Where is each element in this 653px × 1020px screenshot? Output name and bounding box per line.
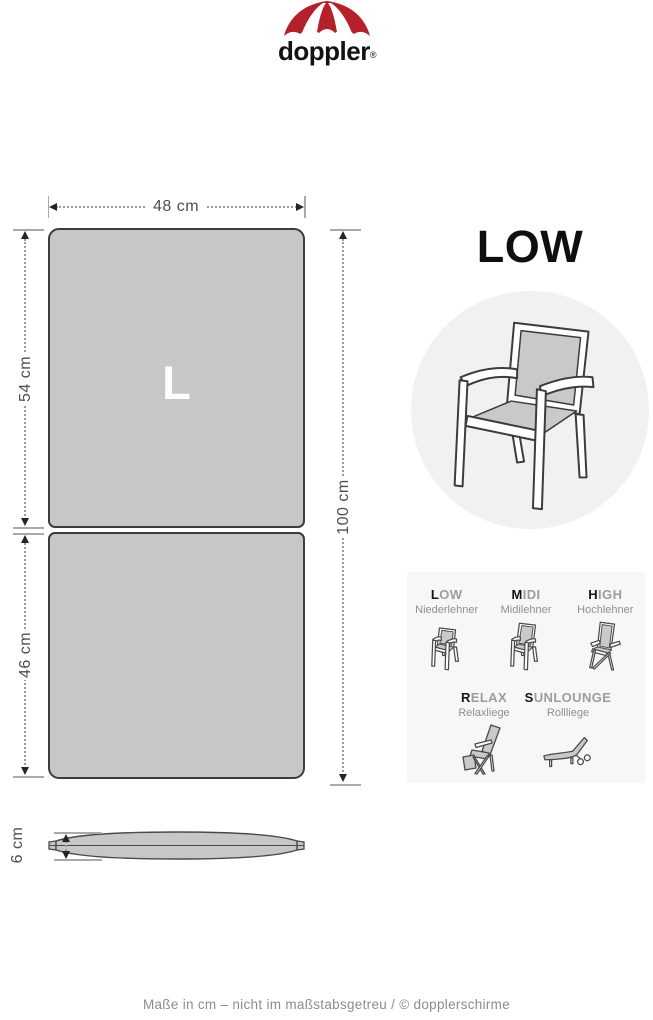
arrow-down-icon (21, 518, 29, 526)
arrow-up-icon (62, 834, 70, 842)
brand-wordmark: doppler® (276, 38, 378, 64)
brand-text: doppler (278, 36, 370, 66)
thickness-label: 6 cm (3, 825, 33, 866)
chair-type-panel: LOW Niederlehner (407, 572, 645, 783)
footer-note: Maße in cm – nicht im maßstabsgetreu / ©… (0, 997, 653, 1012)
size-letter: L (48, 359, 305, 406)
type-item-sunlounge: SUNLOUNGE Rollliege (529, 690, 607, 776)
type-sublabel: Niederlehner (415, 604, 478, 616)
arrow-up-icon (21, 535, 29, 543)
arrow-right-icon (296, 203, 304, 211)
type-sublabel: Hochlehner (577, 604, 633, 616)
cushion-seat-section (48, 532, 305, 779)
product-title: LOW (411, 224, 649, 269)
total-length-label: 100 cm (329, 477, 359, 536)
chair-midi-icon (507, 621, 545, 673)
seat-section-label: 46 cm (11, 630, 41, 680)
arrow-down-icon (62, 851, 70, 859)
product-dimension-sheet: doppler® L 48 cm 54 cm 46 cm 100 (0, 0, 653, 1020)
type-item-low: LOW Niederlehner (408, 587, 486, 673)
chair-low-illustration (411, 291, 649, 529)
type-item-relax: RELAX Relaxliege (445, 690, 523, 776)
type-sublabel: Rollliege (547, 707, 589, 719)
recliner-icon (461, 724, 507, 776)
type-row-2: RELAX Relaxliege SUNLOUNGE Rol (407, 690, 645, 776)
type-sublabel: Relaxliege (458, 707, 509, 719)
chair-high-icon (585, 621, 625, 673)
type-sublabel: Midilehner (501, 604, 552, 616)
type-item-high: HIGH Hochlehner (566, 587, 644, 673)
arrow-up-icon (339, 231, 347, 239)
back-section-label: 54 cm (11, 354, 41, 404)
width-label: 48 cm (146, 197, 206, 217)
registered-mark: ® (370, 50, 376, 60)
sunlounger-icon (541, 731, 595, 775)
cushion-side-view (48, 829, 305, 862)
chair-low-icon (428, 621, 466, 673)
chair-illustration-circle (411, 291, 649, 529)
arrow-up-icon (21, 231, 29, 239)
arrow-down-icon (339, 774, 347, 782)
arrow-left-icon (49, 203, 57, 211)
umbrella-icon (281, 0, 373, 37)
type-row-1: LOW Niederlehner (407, 587, 645, 673)
type-item-midi: MIDI Midilehner (487, 587, 565, 673)
doppler-logo: doppler® (276, 0, 378, 64)
arrow-down-icon (21, 767, 29, 775)
